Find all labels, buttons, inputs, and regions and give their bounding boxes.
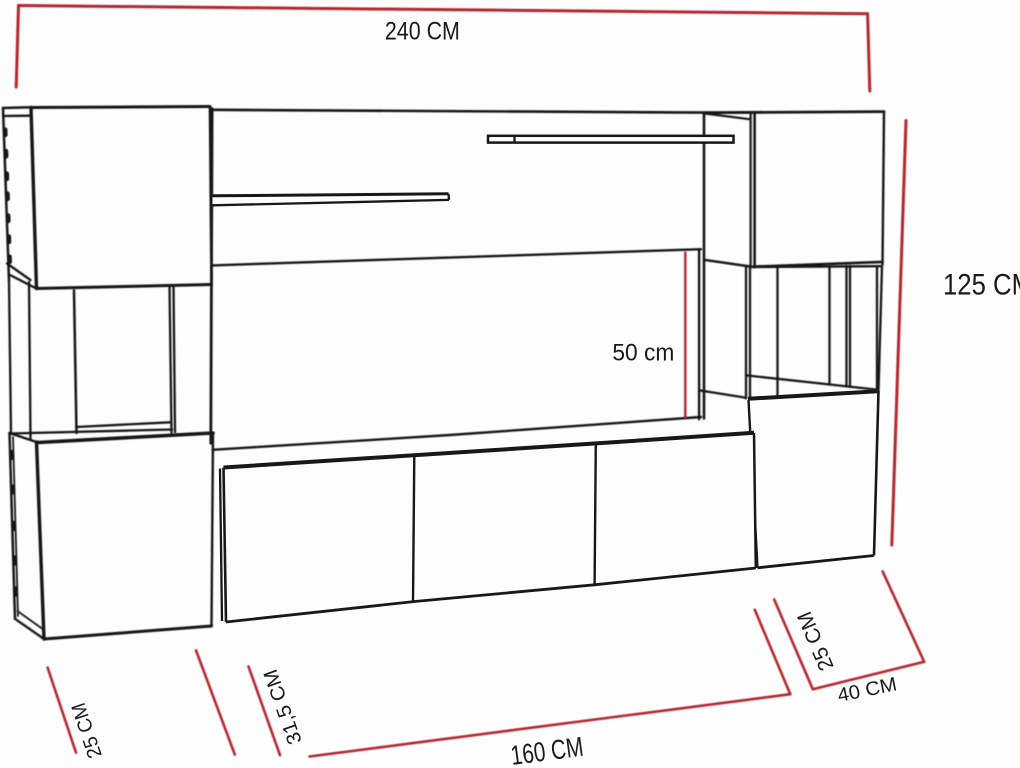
svg-text:50 cm: 50 cm <box>612 340 674 367</box>
svg-text:125 CM: 125 CM <box>943 269 1020 302</box>
svg-text:240 CM: 240 CM <box>385 17 460 45</box>
